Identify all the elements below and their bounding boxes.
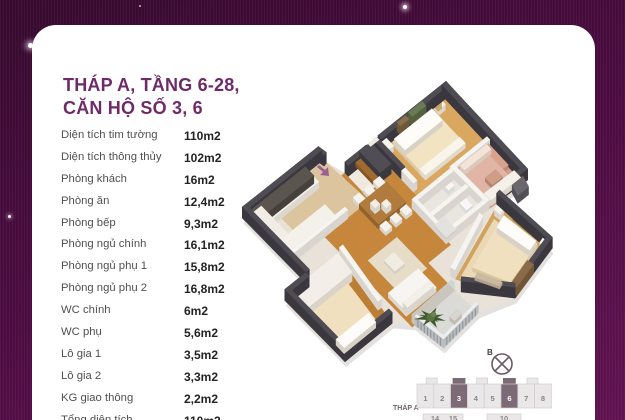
- svg-text:THÁP A: THÁP A: [393, 403, 419, 412]
- svg-text:5: 5: [491, 394, 495, 403]
- svg-text:B: B: [487, 348, 493, 357]
- svg-text:7: 7: [524, 394, 528, 403]
- svg-text:3: 3: [457, 394, 461, 403]
- svg-text:2: 2: [440, 394, 444, 403]
- svg-text:14: 14: [431, 414, 440, 420]
- svg-text:10: 10: [500, 414, 508, 420]
- svg-text:8: 8: [541, 394, 545, 403]
- svg-text:1: 1: [423, 394, 427, 403]
- svg-text:6: 6: [507, 394, 511, 403]
- svg-text:15: 15: [449, 414, 457, 420]
